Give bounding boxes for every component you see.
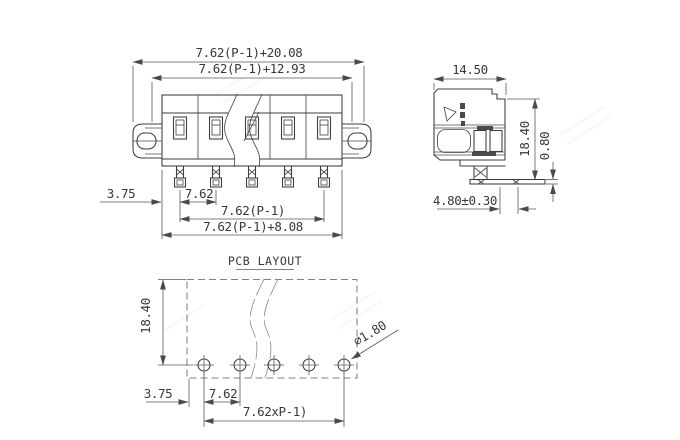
side-solder-pin [470, 166, 545, 184]
front-dim-body-width-label: 7.62(P-1)+8.08 [203, 219, 303, 234]
technical-drawing-sheet: 7.62(P-1)+20.08 7.62(P-1)+12.93 3.75 7.6… [0, 0, 680, 440]
front-dim-edge-offset-label: 3.75 [107, 186, 136, 201]
side-dim-pin-thickness: 0.80 [537, 132, 558, 202]
side-view: 14.50 18.40 0.80 4.80±0.30 [433, 62, 558, 214]
contact-slot [210, 117, 223, 139]
pcb-dim-span-label: 7.62xP-1) [243, 404, 307, 419]
front-dim-pitch-label: 7.62 [185, 186, 214, 201]
front-solder-pins [175, 166, 330, 187]
front-dim-overall-width-label: 7.62(P-1)+20.08 [196, 45, 303, 60]
side-dim-pin-length-label: 4.80±0.30 [433, 193, 497, 208]
pcb-dim-pitch-label: 7.62 [209, 386, 238, 401]
pcb-dim-row-offset-label: 18.40 [138, 298, 153, 334]
solder-pin [247, 166, 258, 187]
side-dim-pin-thickness-label: 0.80 [537, 132, 552, 161]
contact-slot [318, 117, 331, 139]
pcb-dim-hole-diameter: ∅1.80 [351, 318, 398, 359]
solder-pin [175, 166, 186, 187]
side-dim-height-label: 18.40 [517, 121, 532, 157]
pcb-layout-view: PCB LAYOUT [138, 254, 398, 427]
side-dim-pin-length: 4.80±0.30 [433, 187, 536, 214]
solder-pin [319, 166, 330, 187]
side-dim-height: 18.40 [507, 99, 540, 180]
pcb-holes [194, 355, 354, 375]
pcb-dim-edge-offset-label: 3.75 [144, 386, 173, 401]
left-mounting-flange [133, 124, 162, 158]
side-dim-depth: 14.50 [434, 62, 506, 95]
side-dim-depth-label: 14.50 [452, 62, 488, 77]
pcb-outline [187, 279, 357, 378]
front-dim-pin-span-label: 7.62(P-1) [221, 203, 285, 218]
pcb-dims-bottom: 3.75 7.62 7.62xP-1) [144, 372, 344, 427]
pcb-dim-row-offset: 18.40 [138, 280, 193, 366]
right-mounting-flange [342, 124, 371, 158]
contact-slot [174, 117, 187, 139]
pcb-hole [299, 355, 319, 375]
pcb-dim-hole-diameter-label: ∅1.80 [351, 318, 389, 349]
terminal-block-drawing: 7.62(P-1)+20.08 7.62(P-1)+12.93 3.75 7.6… [0, 0, 680, 440]
solder-pin [283, 166, 294, 187]
side-body-details [438, 103, 503, 156]
pcb-layout-title: PCB LAYOUT [228, 254, 302, 268]
contact-slot [282, 117, 295, 139]
front-dim-inner-width-label: 7.62(P-1)+12.93 [199, 61, 306, 76]
front-view: 7.62(P-1)+20.08 7.62(P-1)+12.93 3.75 7.6… [100, 45, 371, 239]
solder-pin [211, 166, 222, 187]
